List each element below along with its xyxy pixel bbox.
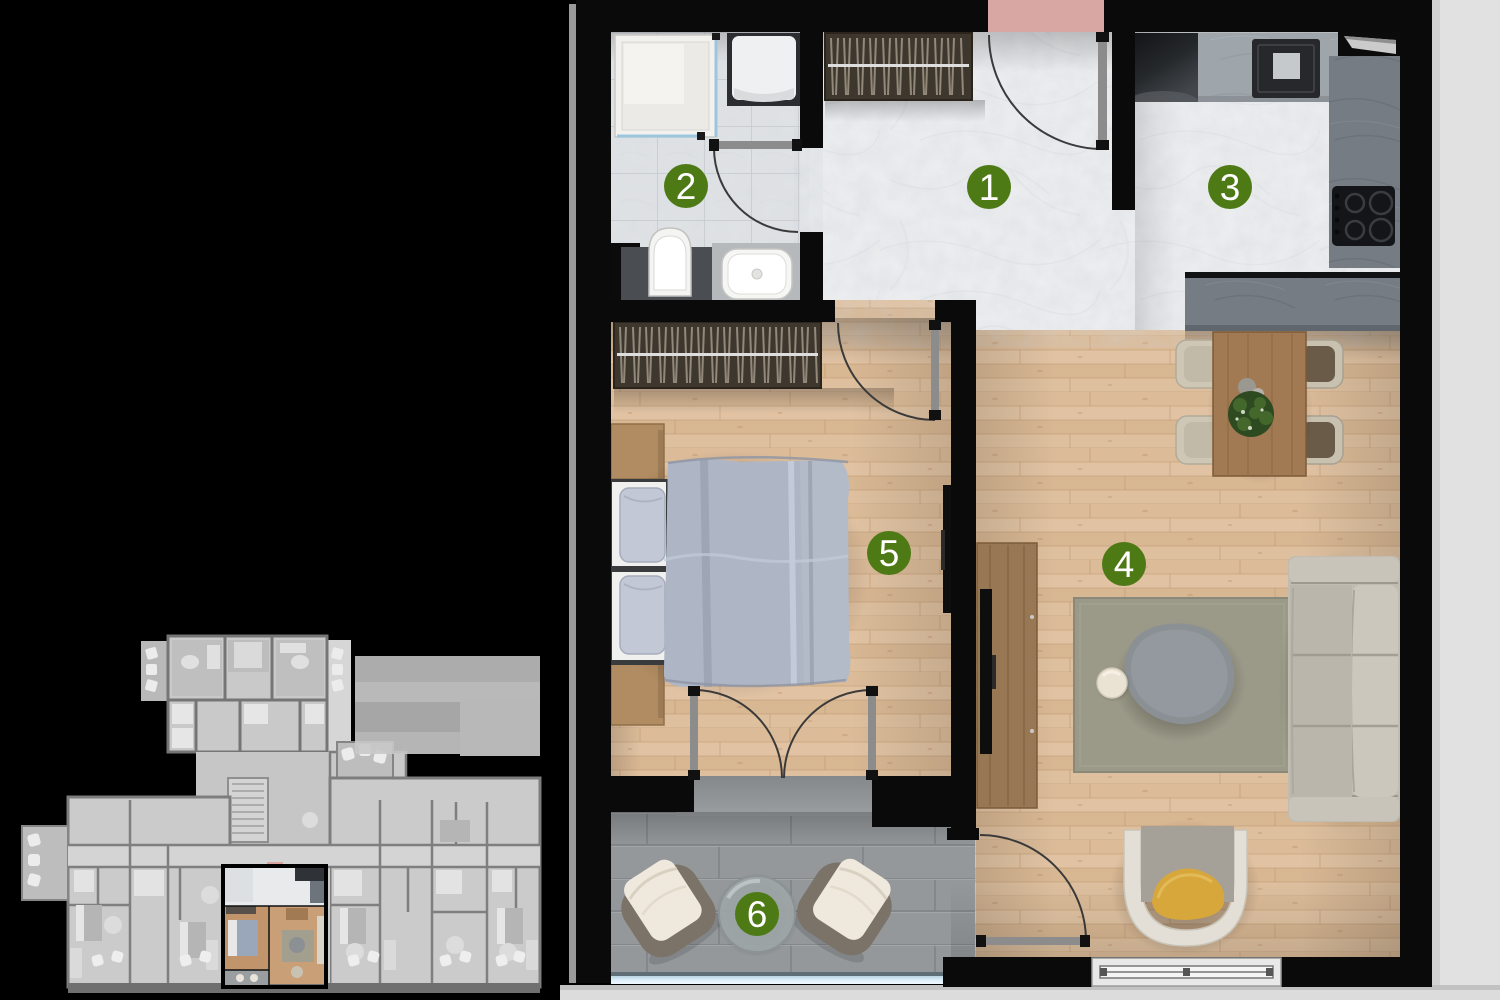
svg-text:1: 1 (979, 167, 1000, 208)
svg-text:4: 4 (1114, 544, 1135, 585)
svg-text:3: 3 (1220, 167, 1241, 208)
svg-text:5: 5 (879, 533, 900, 574)
svg-text:2: 2 (676, 166, 697, 207)
svg-text:6: 6 (747, 894, 768, 935)
